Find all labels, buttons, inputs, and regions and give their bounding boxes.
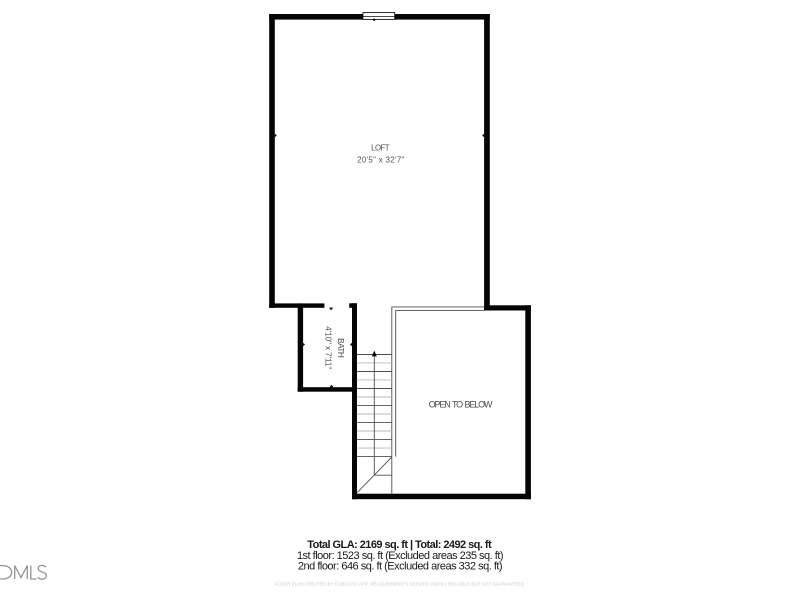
svg-text:BATH: BATH bbox=[336, 338, 345, 358]
svg-text:20'5" x 32'7": 20'5" x 32'7" bbox=[357, 155, 405, 164]
svg-text:FLOOR PLAN CREATED BY CUBICASA: FLOOR PLAN CREATED BY CUBICASA APP. MEAS… bbox=[275, 582, 526, 587]
svg-text:LOFT: LOFT bbox=[371, 144, 390, 153]
svg-text:4'10" x 7'11": 4'10" x 7'11" bbox=[324, 326, 333, 369]
svg-text:2nd floor: 646 sq. ft (Exclude: 2nd floor: 646 sq. ft (Excluded areas 33… bbox=[298, 561, 502, 573]
svg-text:OPEN TO BELOW: OPEN TO BELOW bbox=[429, 400, 493, 410]
